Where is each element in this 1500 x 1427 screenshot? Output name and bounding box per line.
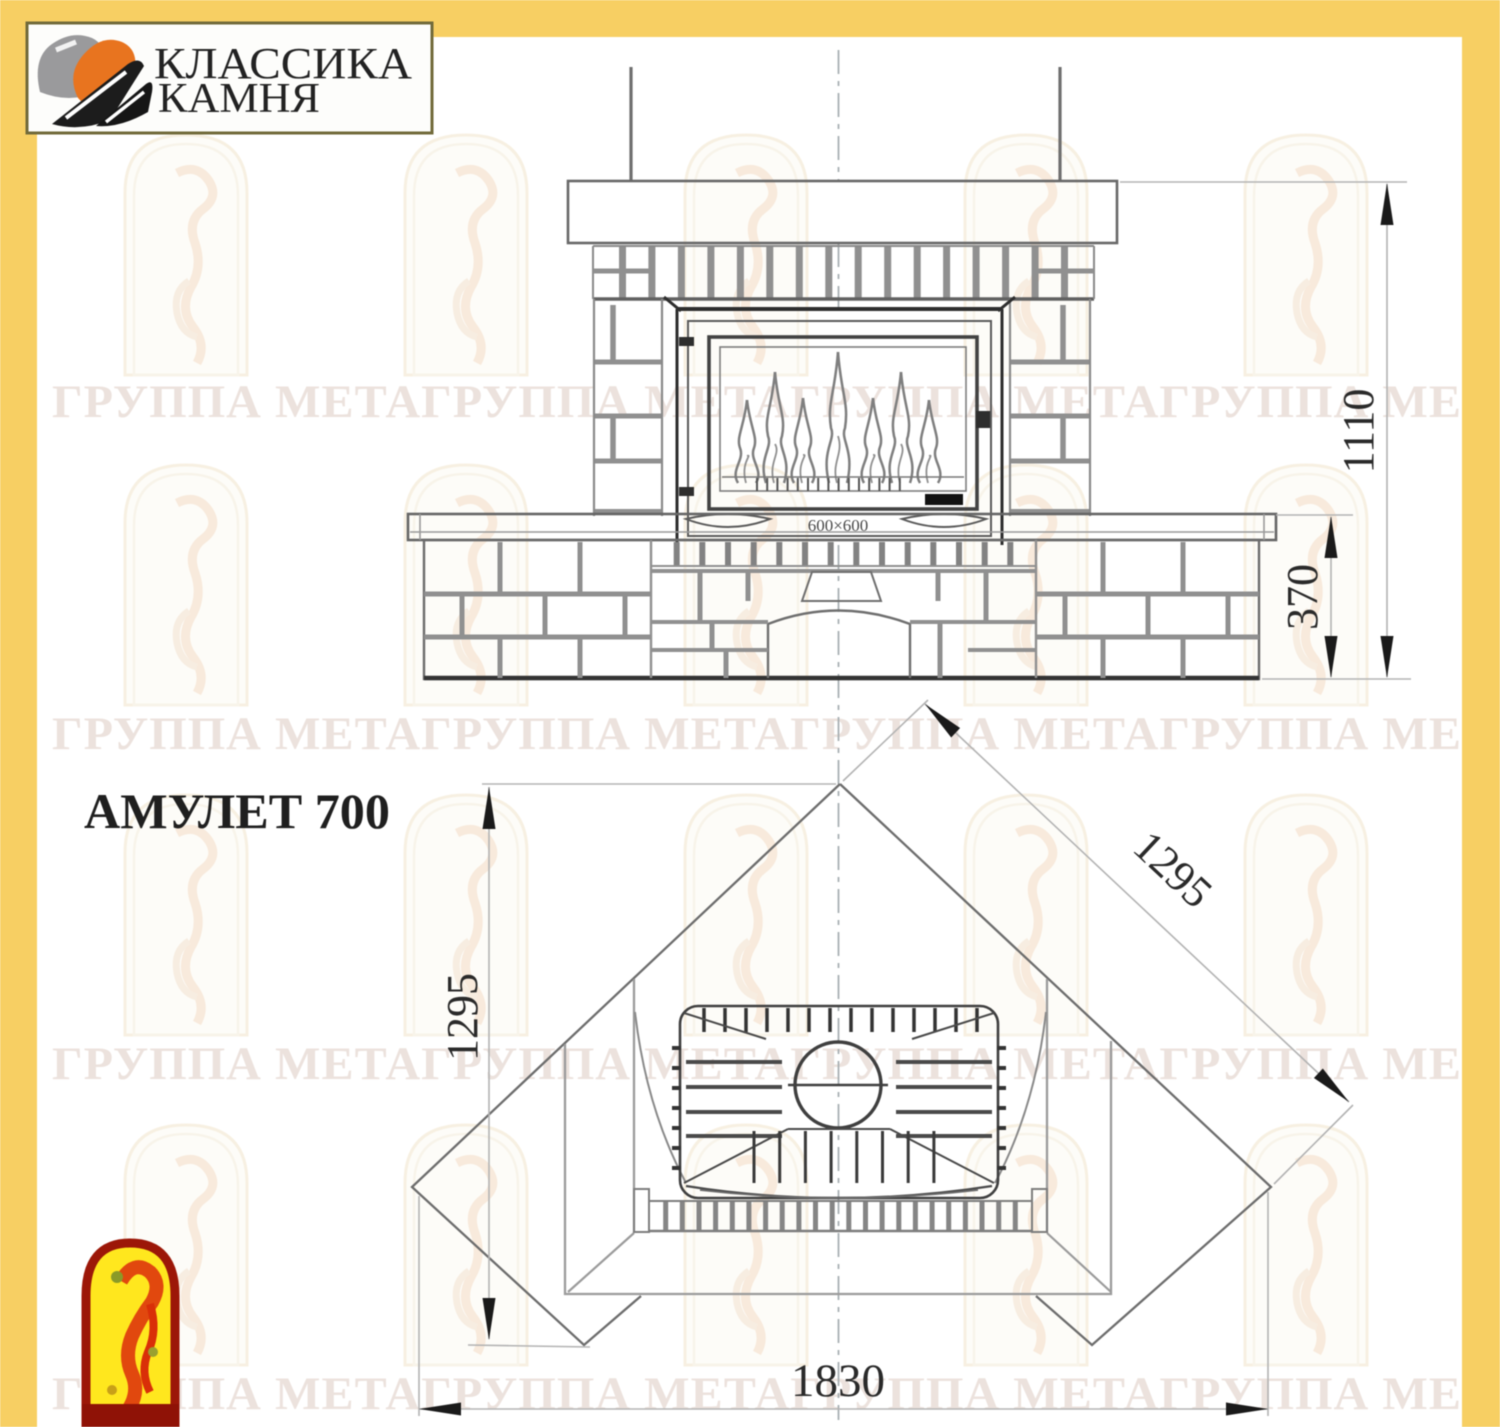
svg-text:КАМНЯ: КАМНЯ xyxy=(158,76,320,122)
svg-text:1110: 1110 xyxy=(1334,389,1383,474)
svg-text:ГРУППА МЕТАГРУППА МЕТАГРУППА М: ГРУППА МЕТАГРУППА МЕТАГРУППА МЕТАГРУППА … xyxy=(52,376,1462,428)
svg-text:1830: 1830 xyxy=(791,1355,885,1407)
svg-text:370: 370 xyxy=(1278,564,1327,630)
svg-text:1295: 1295 xyxy=(438,973,487,1061)
svg-text:АМУЛЕТ 700: АМУЛЕТ 700 xyxy=(84,783,390,839)
svg-text:ГРУППА МЕТАГРУППА МЕТАГРУППА М: ГРУППА МЕТАГРУППА МЕТАГРУППА МЕТАГРУППА … xyxy=(52,708,1462,760)
svg-text:ГРУППА МЕТАГРУППА МЕТАГРУППА М: ГРУППА МЕТАГРУППА МЕТАГРУППА МЕТАГРУППА … xyxy=(52,1368,1462,1420)
